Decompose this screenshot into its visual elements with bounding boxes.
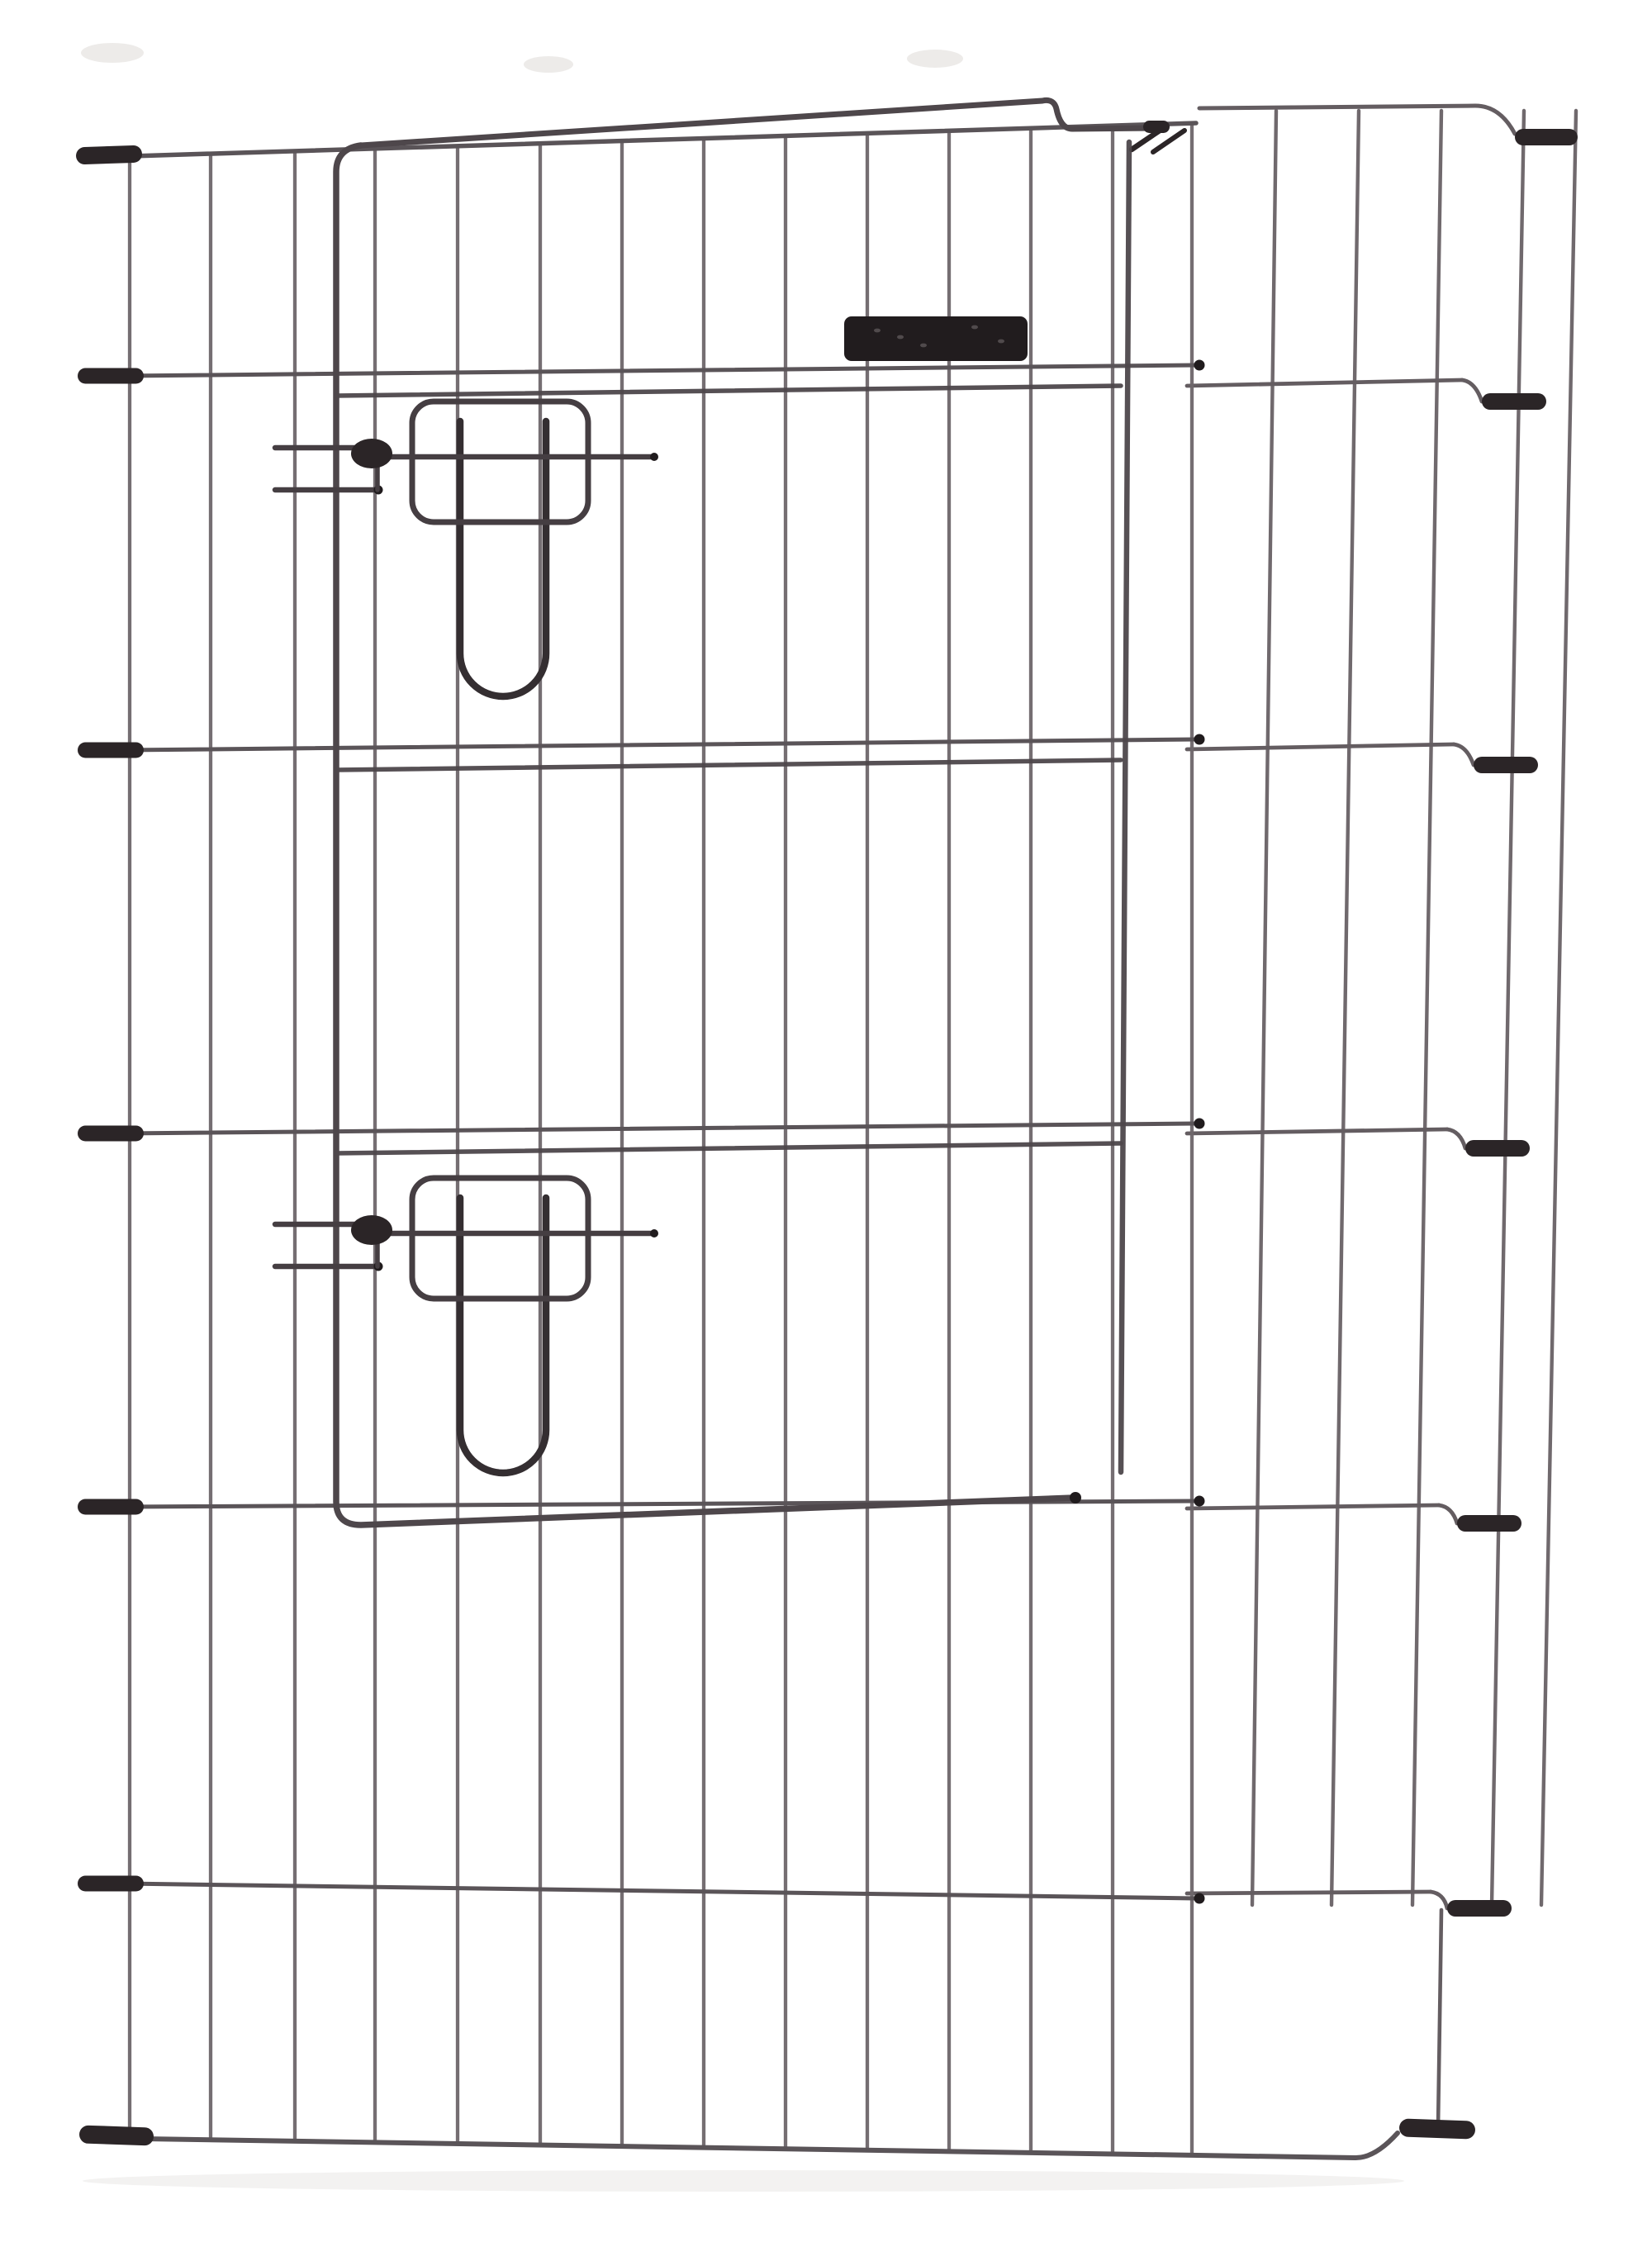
brand-plate bbox=[844, 316, 1028, 361]
wire-exercise-pen-illustration bbox=[0, 0, 1652, 2247]
latch-assembly-top bbox=[275, 401, 658, 696]
photo-smudges bbox=[81, 43, 963, 73]
main-panel bbox=[76, 123, 1476, 2158]
product-photo bbox=[0, 0, 1652, 2247]
floor-shadow bbox=[83, 2170, 1404, 2192]
side-panel bbox=[1187, 106, 1578, 2128]
latch-assembly-bottom bbox=[275, 1178, 658, 1473]
